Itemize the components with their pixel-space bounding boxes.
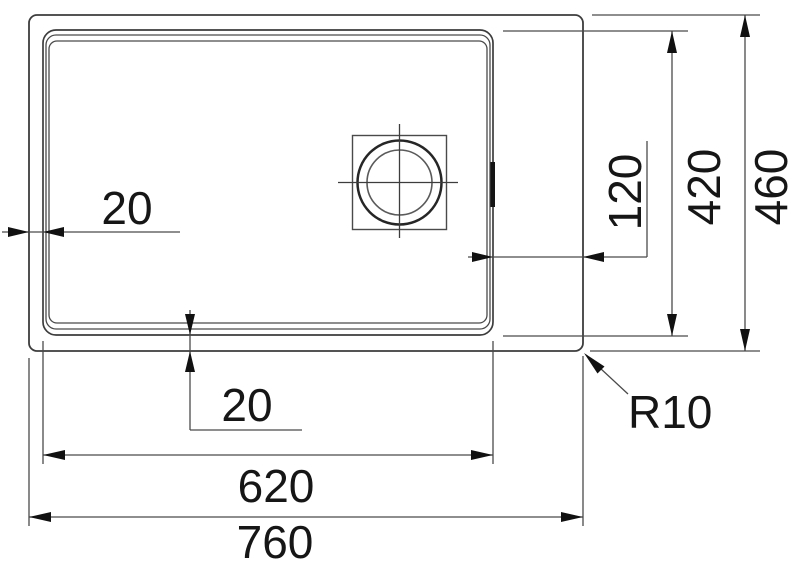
arrow-up-left-icon	[584, 353, 605, 374]
dim-label-left-offset: 20	[101, 182, 152, 234]
arrow-left-icon	[43, 450, 65, 460]
arrow-down-icon	[185, 314, 195, 335]
dim-label-bottom-offset: 20	[221, 379, 272, 431]
arrow-right-icon	[561, 512, 583, 522]
drawing-canvas: 20 20 120 420 460	[0, 0, 792, 578]
dim-label-bowl-width: 620	[238, 460, 315, 512]
radius-label: R10	[628, 386, 712, 438]
arrow-left-icon	[583, 252, 604, 262]
dim-label-overall-depth: 460	[745, 149, 792, 226]
arrow-up-icon	[667, 31, 677, 53]
dim-bottom-offset: 20	[185, 310, 302, 431]
arrow-down-icon	[740, 329, 750, 351]
radius-callout: R10	[584, 353, 712, 438]
arrow-down-icon	[667, 314, 677, 336]
dim-label-overall-width: 760	[237, 516, 314, 568]
arrow-right-icon	[471, 450, 493, 460]
dim-label-right-ledge: 120	[599, 154, 651, 231]
arrow-up-icon	[740, 15, 750, 37]
sink-dimension-drawing: 20 20 120 420 460	[0, 0, 792, 578]
dim-label-bowl-depth: 420	[678, 149, 730, 226]
arrow-right-icon	[8, 227, 29, 237]
dim-right-ledge: 120	[468, 141, 651, 262]
bowl-right-edge-mark	[491, 162, 496, 207]
arrow-left-icon	[29, 512, 51, 522]
arrow-up-icon	[185, 351, 195, 372]
